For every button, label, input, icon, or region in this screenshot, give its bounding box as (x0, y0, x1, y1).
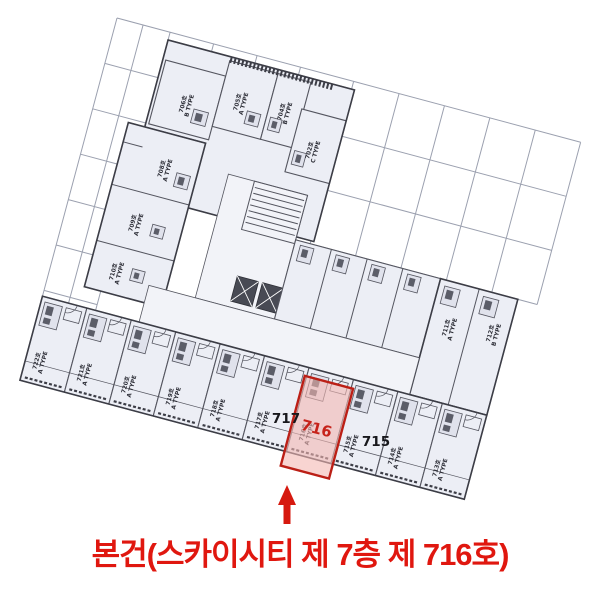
floor-plan-canvas: 722호A TYPE721호A TYPE720호A TYPE719호A TYPE… (0, 0, 600, 600)
callout-717: 717 (272, 411, 300, 427)
floor-plan-page: 722호A TYPE721호A TYPE720호A TYPE719호A TYPE… (0, 0, 600, 600)
up-arrow-icon (278, 485, 296, 524)
floor-plan: 722호A TYPE721호A TYPE720호A TYPE719호A TYPE… (16, 18, 581, 519)
caption: 본건(스카이시티 제 7층 제 716호) (0, 529, 600, 574)
callout-715: 715 (362, 434, 390, 450)
